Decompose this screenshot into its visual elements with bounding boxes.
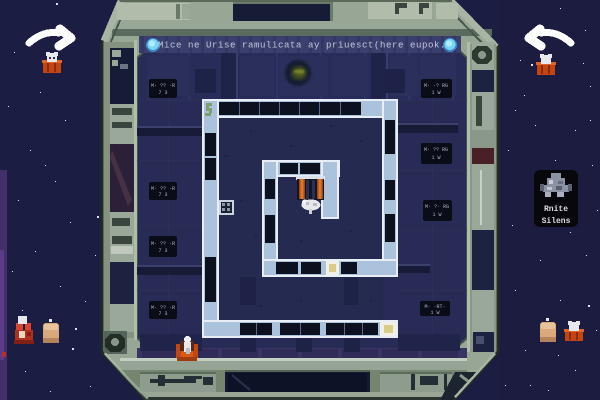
svg-text:7 3: 7 3 (158, 192, 167, 198)
svg-text:Mice ne Urise ramulicata ay pr: Mice ne Urise ramulicata ay priuesct(her… (158, 41, 446, 51)
svg-text:M· ·? RG: M· ·? RG (424, 83, 448, 89)
svg-text:1 W: 1 W (431, 90, 440, 96)
svg-text:1 W: 1 W (431, 155, 440, 161)
svg-text:1 W: 1 W (430, 310, 439, 316)
svg-text:M· ?· RG: M· ?· RG (425, 204, 449, 210)
svg-text:7 3: 7 3 (158, 311, 167, 317)
svg-text:M· ?? RG: M· ?? RG (424, 147, 448, 153)
svg-text:Rnite: Rnite (544, 205, 568, 214)
svg-text:M· ?? ·R: M· ?? ·R (151, 83, 175, 89)
svg-text:1 W: 1 W (432, 212, 441, 218)
svg-text:Silens: Silens (542, 217, 571, 226)
svg-text:M· ?? ·R: M· ?? ·R (151, 241, 175, 247)
svg-text:7 3: 7 3 (158, 90, 167, 96)
svg-text:7 3: 7 3 (158, 248, 167, 254)
